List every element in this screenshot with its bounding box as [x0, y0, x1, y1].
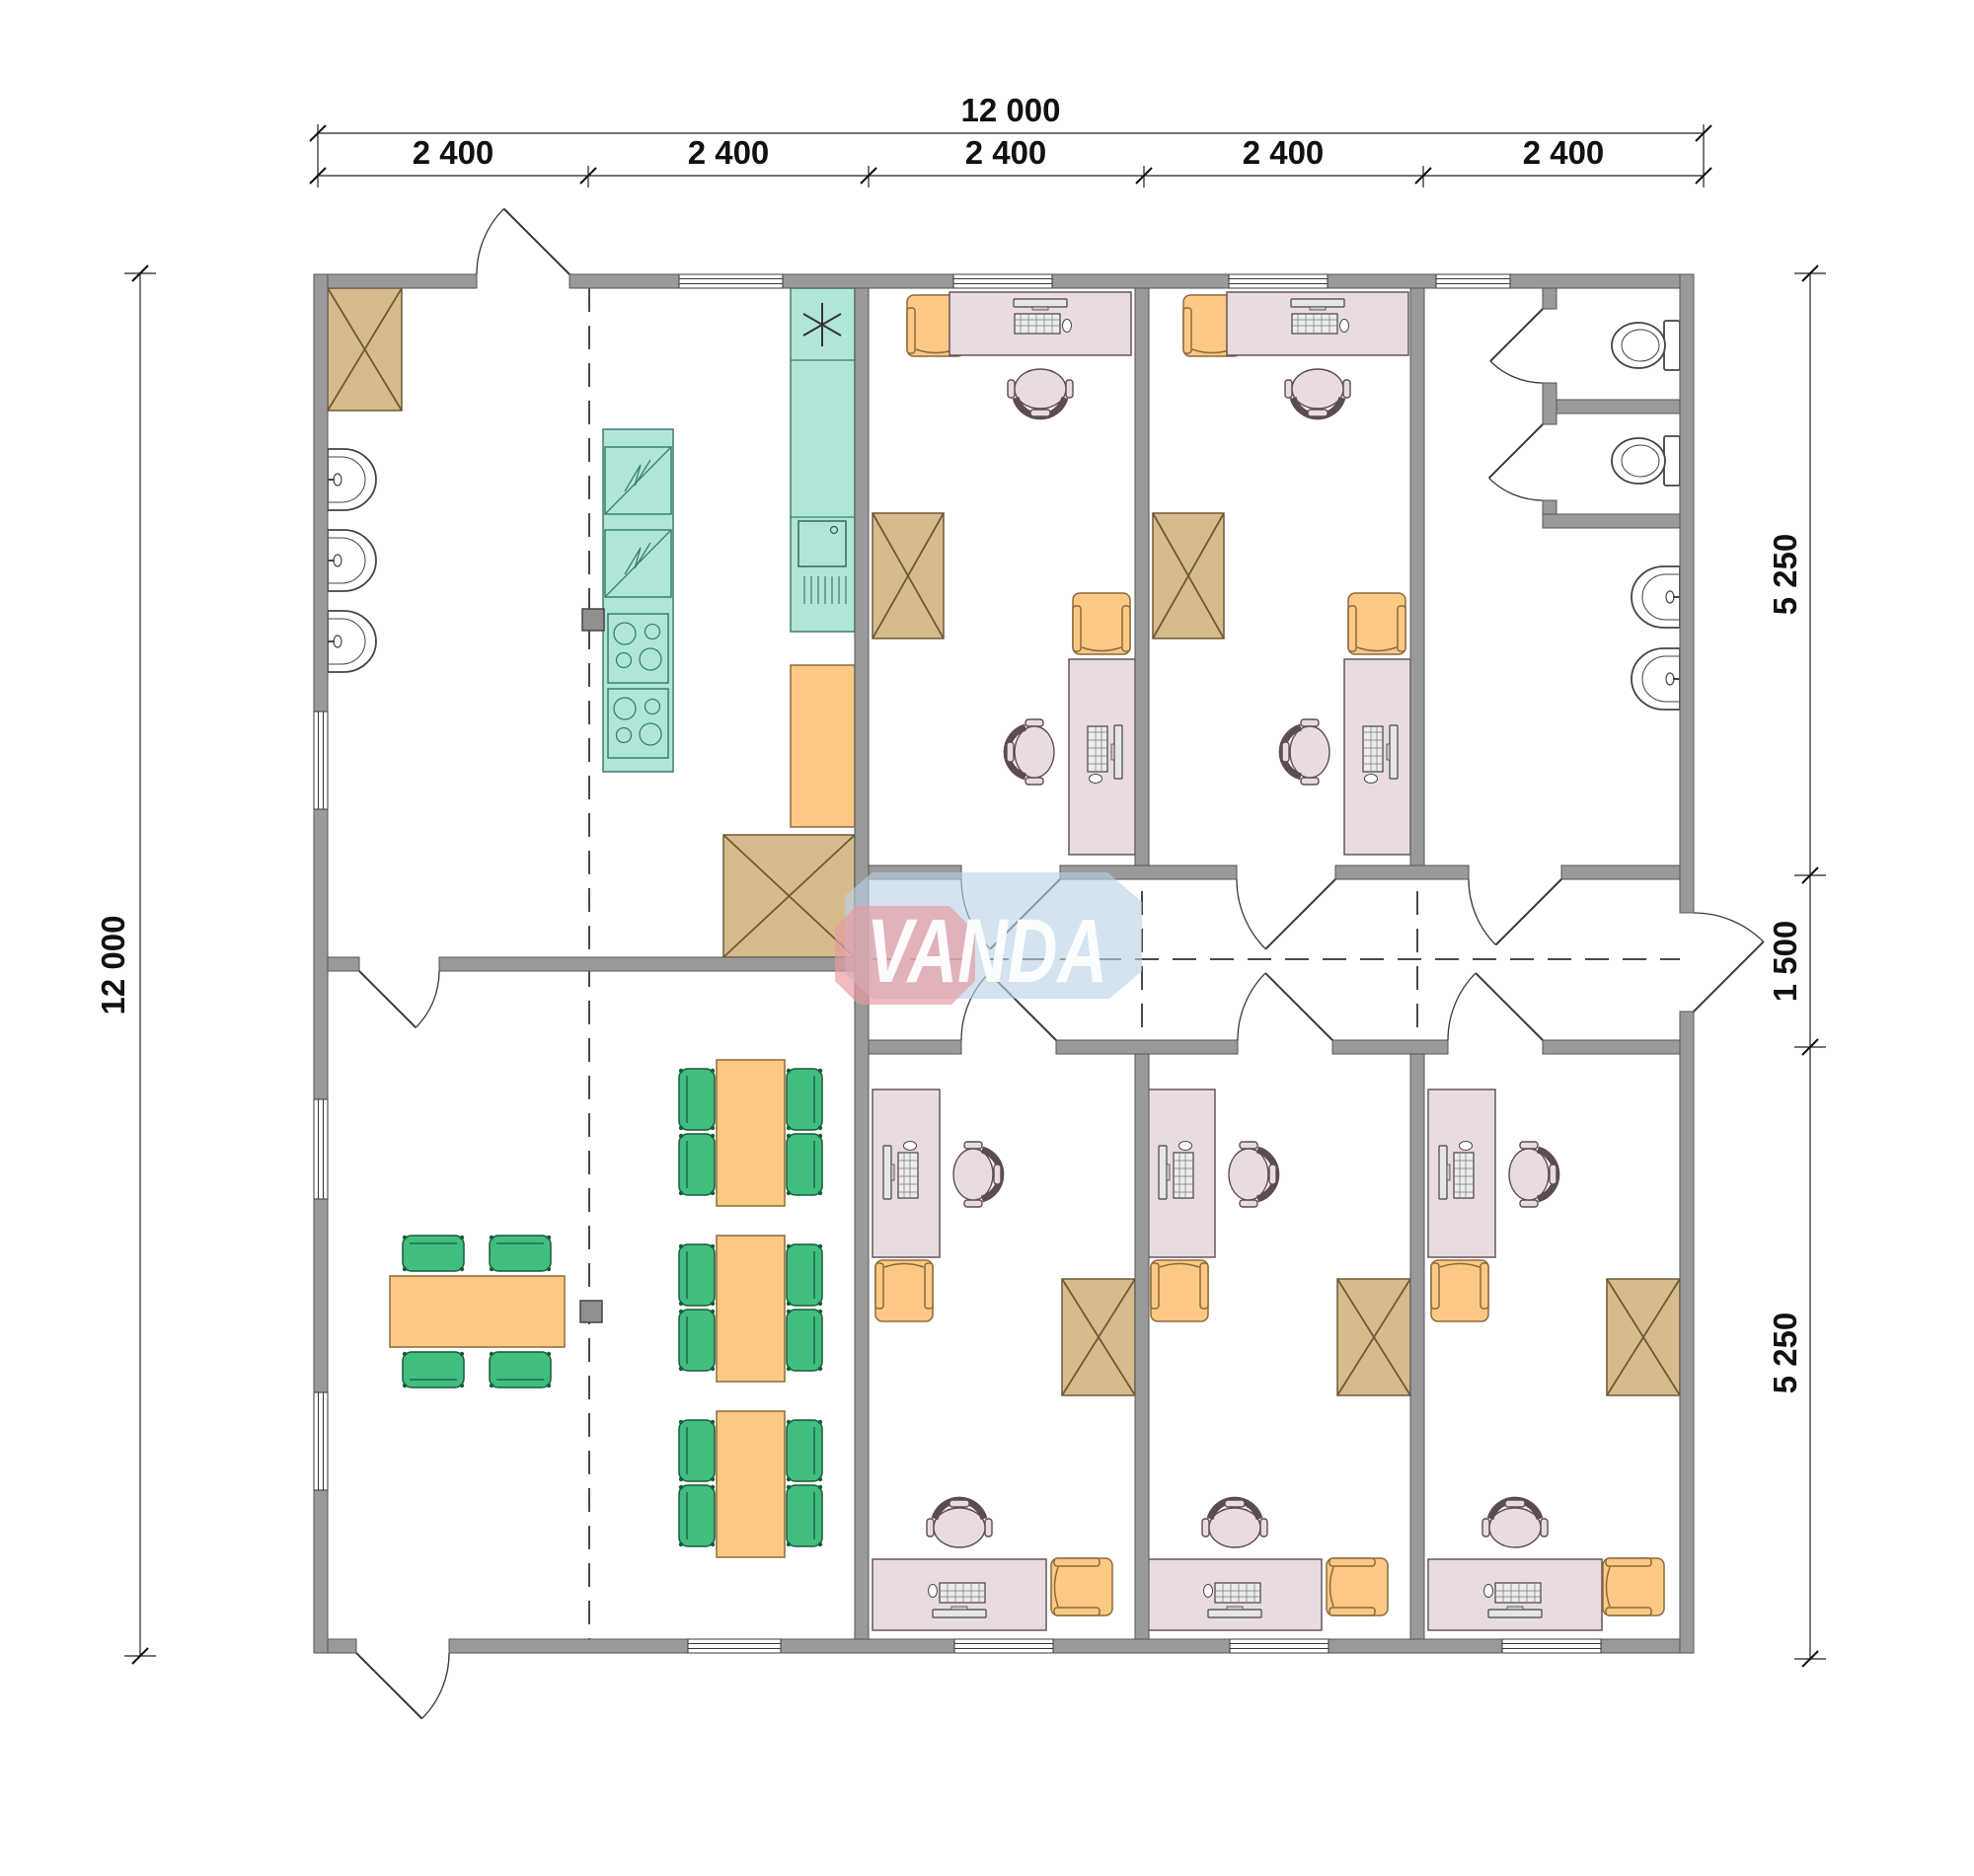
- wardrobe-icon: [1062, 1279, 1135, 1395]
- dim-module: 2 400: [1243, 134, 1325, 171]
- wall-segment: [781, 1639, 954, 1653]
- window: [314, 712, 328, 809]
- fridge-icon: [605, 447, 671, 514]
- sink-icon: [328, 449, 376, 510]
- office-chair-icon: [1202, 1500, 1267, 1547]
- window: [1230, 1639, 1329, 1653]
- toilet-icon: [1612, 436, 1680, 486]
- wall-segment: [1510, 274, 1694, 288]
- wall-segment: [1543, 514, 1680, 528]
- dim-module: 2 400: [965, 134, 1047, 171]
- office-chair-icon: [1482, 1500, 1548, 1547]
- wardrobe-icon: [1607, 1279, 1680, 1395]
- office-top-2-door: [1237, 879, 1335, 949]
- wall-segment: [314, 274, 328, 712]
- wc-door: [1469, 879, 1561, 945]
- wall-segment: [314, 809, 328, 1099]
- dining-chair-icon: [403, 1236, 464, 1271]
- dimension-right: 5 250 1 500 5 250: [1767, 265, 1826, 1667]
- sink-icon: [328, 530, 376, 591]
- wall-segment: [1056, 1040, 1238, 1054]
- kitchen-dining-door: [359, 971, 439, 1027]
- wall-segment: [569, 274, 679, 288]
- wall-segment: [314, 1490, 328, 1653]
- dining-chair-icon: [679, 1069, 715, 1130]
- wall-segment: [1543, 1040, 1680, 1054]
- dining-chair-icon: [679, 1485, 715, 1546]
- fridge-icon: [605, 530, 671, 597]
- kitchen-counter-run: [791, 288, 855, 632]
- kitchen-room: [328, 288, 855, 957]
- armchair-icon: [1431, 1260, 1488, 1321]
- sink-icon: [1632, 566, 1680, 628]
- dining-table: [717, 1411, 785, 1557]
- dining-chair-icon: [787, 1310, 822, 1371]
- dim-total-width: 12 000: [961, 92, 1061, 128]
- dining-chair-icon: [787, 1485, 822, 1546]
- wall-segment: [1680, 274, 1694, 913]
- dim-module: 2 400: [1523, 134, 1605, 171]
- armchair-icon: [1603, 1558, 1664, 1615]
- entrance-door: [477, 209, 569, 275]
- wall-segment: [1053, 1639, 1230, 1653]
- office-bottom-1: [873, 1089, 1135, 1630]
- dim-right-middle: 1 500: [1767, 921, 1803, 1003]
- wall-segment: [1543, 383, 1556, 424]
- dining-chair-icon: [787, 1134, 822, 1195]
- office-top-1: [873, 292, 1135, 855]
- armchair-icon: [1348, 593, 1405, 654]
- dining-exterior-door: [356, 1653, 449, 1719]
- wall-segment: [869, 1040, 961, 1054]
- dining-chair-icon: [787, 1244, 822, 1306]
- window: [1502, 1639, 1601, 1653]
- wall-segment: [328, 957, 359, 971]
- corridor-exterior-door: [1694, 913, 1764, 1012]
- column-icon: [580, 1301, 602, 1322]
- office-bottom-2-door: [1238, 973, 1332, 1040]
- wall-segment: [1543, 288, 1556, 309]
- wall-segment: [1561, 865, 1680, 879]
- wall-segment: [1328, 274, 1436, 288]
- office-chair-icon: [1285, 369, 1350, 416]
- office-chair-icon: [1282, 719, 1329, 785]
- wall-segment: [1135, 288, 1149, 865]
- dining-table: [717, 1060, 785, 1206]
- dining-chair-icon: [679, 1420, 715, 1481]
- sink-icon: [328, 611, 376, 672]
- armchair-icon: [875, 1260, 933, 1321]
- dining-chair-icon: [403, 1352, 464, 1388]
- dining-table: [717, 1236, 785, 1382]
- wall-segment: [314, 274, 477, 288]
- stove-icon: [608, 614, 668, 683]
- logo-text: VANDA: [867, 901, 1107, 1002]
- wall-segment: [449, 1639, 688, 1653]
- office-chair-icon: [953, 1142, 1001, 1207]
- wardrobe-icon: [1153, 513, 1224, 638]
- office-bottom-3-door: [1448, 973, 1543, 1040]
- dim-total-height: 12 000: [95, 916, 131, 1015]
- wall-segment: [1410, 1054, 1424, 1639]
- window: [954, 1639, 1053, 1653]
- dining-chair-icon: [679, 1244, 715, 1306]
- window: [953, 274, 1052, 288]
- dining-table: [390, 1276, 565, 1347]
- window: [314, 1392, 328, 1490]
- wall-segment: [314, 1199, 328, 1392]
- sink-icon: [1632, 648, 1680, 710]
- office-chair-icon: [1008, 369, 1073, 416]
- window: [688, 1639, 781, 1653]
- armchair-icon: [1151, 1260, 1208, 1321]
- armchair-icon: [1051, 1558, 1112, 1615]
- window: [1436, 274, 1510, 288]
- dining-chair-icon: [679, 1134, 715, 1195]
- office-bottom-2: [1148, 1089, 1410, 1630]
- dining-chair-icon: [679, 1310, 715, 1371]
- window: [1229, 274, 1328, 288]
- wc-stall-door: [1490, 309, 1543, 383]
- dining-room: [390, 1060, 822, 1557]
- wall-segment: [1335, 865, 1469, 879]
- wardrobe-icon: [873, 513, 944, 638]
- dining-chair-icon: [787, 1069, 822, 1130]
- stove-icon: [608, 689, 668, 758]
- wall-segment: [1680, 1012, 1694, 1653]
- vanda-logo: VANDA: [835, 872, 1142, 1005]
- wall-segment: [1543, 500, 1556, 514]
- wc-stall-door: [1489, 424, 1543, 500]
- dimension-left: 12 000: [95, 265, 156, 1664]
- dining-chair-icon: [787, 1420, 822, 1481]
- office-chair-icon: [927, 1500, 992, 1547]
- dining-chair-icon: [490, 1236, 551, 1271]
- wall-segment: [1332, 1040, 1448, 1054]
- window: [679, 274, 783, 288]
- wardrobe-icon: [1337, 1279, 1410, 1395]
- office-chair-icon: [1229, 1142, 1276, 1207]
- dimension-top: 12 000 2 400 2 400 2 400 2 400 2 400: [310, 92, 1711, 188]
- wall-segment: [783, 274, 953, 288]
- wall-segment: [1135, 1054, 1149, 1639]
- office-chair-icon: [1509, 1142, 1556, 1207]
- wardrobe-icon: [328, 288, 402, 411]
- dining-chair-icon: [490, 1352, 551, 1388]
- wall-segment: [1329, 1639, 1502, 1653]
- kitchen-appliance-run: [603, 429, 673, 772]
- dim-right-top: 5 250: [1767, 534, 1803, 616]
- toilet-icon: [1612, 321, 1680, 370]
- armchair-icon: [1073, 593, 1130, 654]
- office-top-2: [1153, 292, 1410, 855]
- armchair-icon: [1327, 1558, 1388, 1615]
- window: [314, 1099, 328, 1199]
- kitchen-table: [791, 665, 855, 827]
- office-bottom-3: [1428, 1089, 1680, 1630]
- dim-right-bottom: 5 250: [1767, 1313, 1803, 1394]
- office-chair-icon: [1007, 719, 1054, 785]
- dim-module: 2 400: [413, 134, 494, 171]
- wall-segment: [439, 957, 855, 971]
- floor-plan-drawing: 12 000 2 400 2 400 2 400 2 400 2 400 12 …: [0, 0, 1974, 1876]
- floor-plan-canvas: 12 000 2 400 2 400 2 400 2 400 2 400 12 …: [0, 0, 1974, 1876]
- wall-segment: [1556, 400, 1680, 413]
- wall-segment: [1052, 274, 1229, 288]
- dim-module: 2 400: [688, 134, 770, 171]
- wall-segment: [1410, 288, 1424, 865]
- column-icon: [582, 609, 604, 631]
